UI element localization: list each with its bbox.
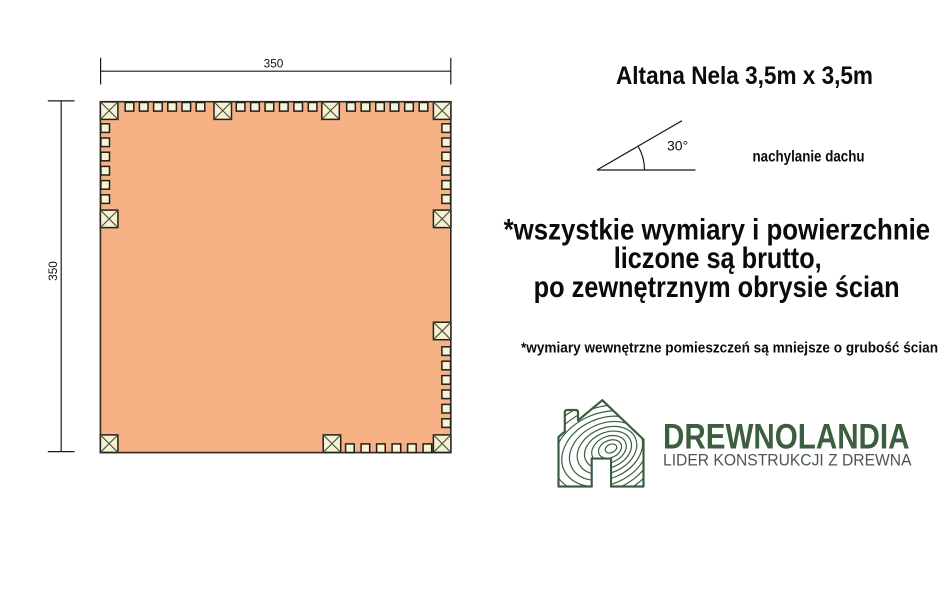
svg-text:DREWNOLANDIA: DREWNOLANDIA xyxy=(663,417,910,456)
svg-text:30°: 30° xyxy=(667,138,688,154)
svg-text:350: 350 xyxy=(46,261,60,281)
svg-text:liczone są brutto,: liczone są brutto, xyxy=(614,242,822,275)
svg-text:350: 350 xyxy=(264,56,284,70)
svg-text:po zewnętrznym obrysie ścian: po zewnętrznym obrysie ścian xyxy=(534,271,900,304)
svg-text:*wymiary wewnętrzne pomieszcze: *wymiary wewnętrzne pomieszczeń są mniej… xyxy=(521,340,938,357)
svg-text:Altana Nela 3,5m x 3,5m: Altana Nela 3,5m x 3,5m xyxy=(616,62,873,90)
svg-text:LIDER KONSTRUKCJI Z DREWNA: LIDER KONSTRUKCJI Z DREWNA xyxy=(663,452,912,470)
svg-text:nachylanie dachu: nachylanie dachu xyxy=(753,148,865,165)
